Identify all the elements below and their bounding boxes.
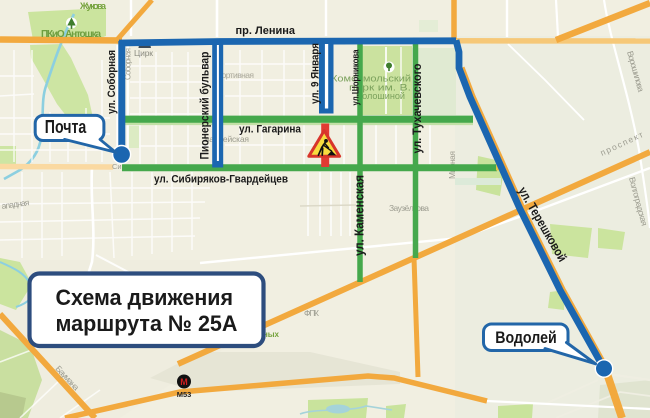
svg-text:Водолей: Водолей [495, 328, 557, 347]
svg-text:маршрута № 25А: маршрута № 25А [56, 311, 238, 336]
svg-text:ул. Тухачевского: ул. Тухачевского [410, 63, 424, 153]
svg-text:Пионерский бульвар: Пионерский бульвар [200, 52, 212, 160]
svg-text:ул. 9 Января: ул. 9 Января [310, 43, 322, 104]
svg-text:ул. Сибиряков-Гвардейцев: ул. Сибиряков-Гвардейцев [154, 173, 288, 185]
svg-text:Схема движения: Схема движения [56, 285, 234, 310]
svg-text:Волошиной: Волошиной [356, 91, 405, 102]
svg-text:ФПК: ФПК [304, 308, 319, 318]
svg-text:пр. Ленина: пр. Ленина [236, 25, 297, 37]
svg-text:Цирк: Цирк [134, 48, 153, 58]
svg-text:ул. Каменская: ул. Каменская [353, 175, 367, 256]
svg-text:ул. Соборная: ул. Соборная [106, 50, 118, 114]
svg-text:Почта: Почта [45, 117, 87, 137]
svg-text:Заузёлкова: Заузёлкова [389, 203, 429, 213]
svg-text:Жукова: Жукова [79, 1, 107, 11]
svg-text:ул. Гагарина: ул. Гагарина [239, 124, 302, 136]
svg-text:М53: М53 [177, 390, 192, 399]
svg-text:M: M [180, 377, 188, 387]
svg-text:ул.Шорникова: ул.Шорникова [351, 49, 361, 106]
svg-text:ПКиО Антошка: ПКиО Антошка [41, 29, 101, 40]
